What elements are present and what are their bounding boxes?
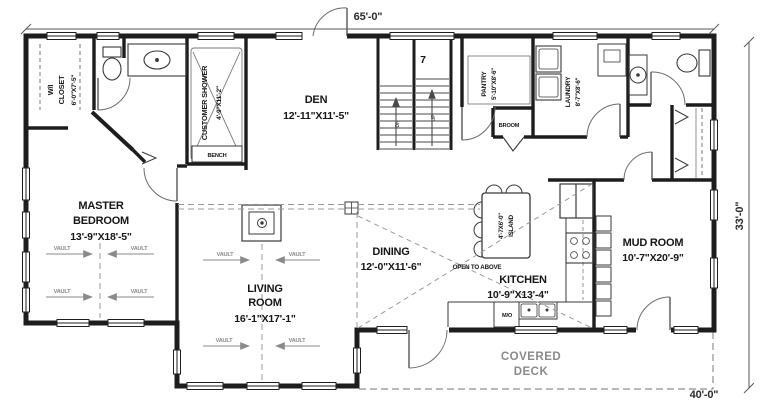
broom-label: BROOM (499, 123, 520, 129)
room-master-size: 13'-9"X18'-5" (70, 231, 132, 243)
vault-label: VAULT (54, 289, 72, 295)
room-pantry-size: 5'-10"X8'-6" (491, 68, 498, 100)
room-kitchen-name: KITCHEN (499, 274, 547, 286)
open-to-above-label: OPEN TO ABOVE (453, 264, 502, 271)
deck-l2: DECK (514, 366, 549, 378)
floor-plan-drawing: 65'-0" 33'-0" 40'-0" MASTER BEDROOM 13'-… (0, 0, 768, 401)
room-kitchen-size: 10'-9"X13'-4" (487, 289, 549, 301)
room-wic-size: 6'-0"X7'-5" (71, 75, 78, 106)
vault-label: VAULT (289, 338, 307, 344)
room-living-l2: ROOM (248, 297, 281, 309)
vault-label: VAULT (217, 252, 235, 258)
vault-label: VAULT (216, 338, 234, 344)
vault-label: VAULT (131, 289, 149, 295)
room-living-l1: LIVING (247, 283, 282, 295)
room-pantry-name: PANTRY (481, 71, 488, 97)
vault-label: VAULT (54, 246, 72, 252)
island-name: ISLAND (508, 214, 515, 237)
room-mud-size: 10'-7"X20'-9" (622, 252, 684, 264)
stairs-up-label: UP (431, 114, 437, 122)
room-den-name: DEN (305, 94, 328, 106)
room-dining-name: DINING (372, 246, 409, 258)
room-master-l1: MASTER (78, 200, 124, 212)
island-size: 4'-7X6'-0" (498, 213, 505, 239)
dim-width: 65'-0" (354, 11, 383, 23)
room-wic-l1: W/I (46, 85, 55, 96)
vault-label: VAULT (131, 246, 149, 252)
room-shower-size: 4'-9"X11'-2" (216, 86, 223, 120)
appliance-label: M/O (502, 313, 513, 319)
stairs-dn-label: DN (395, 120, 401, 128)
room-shower-name: CUSTOMER SHOWER (200, 65, 209, 140)
room-master-l2: BEDROOM (73, 215, 129, 227)
dim-depth: 33'-0" (734, 202, 746, 231)
bench-label: BENCH (208, 153, 227, 159)
stair-note: 7 (420, 54, 426, 66)
room-laundry-size: 8'-7"X8'-6" (575, 77, 582, 106)
floor-plan: 65'-0" 33'-0" 40'-0" MASTER BEDROOM 13'-… (0, 0, 768, 401)
room-den-size: 12'-11"X11'-5" (283, 110, 349, 122)
room-dining-size: 12'-0"X11'-6" (361, 261, 422, 273)
room-mud-name: MUD ROOM (623, 237, 684, 249)
deck-l1: COVERED (501, 351, 561, 363)
room-laundry-name: LAUNDRY (565, 76, 572, 107)
room-living-size: 16'-1"X17'-1" (234, 313, 296, 325)
vault-label: VAULT (289, 252, 307, 258)
dim-deck: 40'-0" (690, 389, 719, 401)
room-wic-l2: CLOSET (57, 75, 66, 104)
